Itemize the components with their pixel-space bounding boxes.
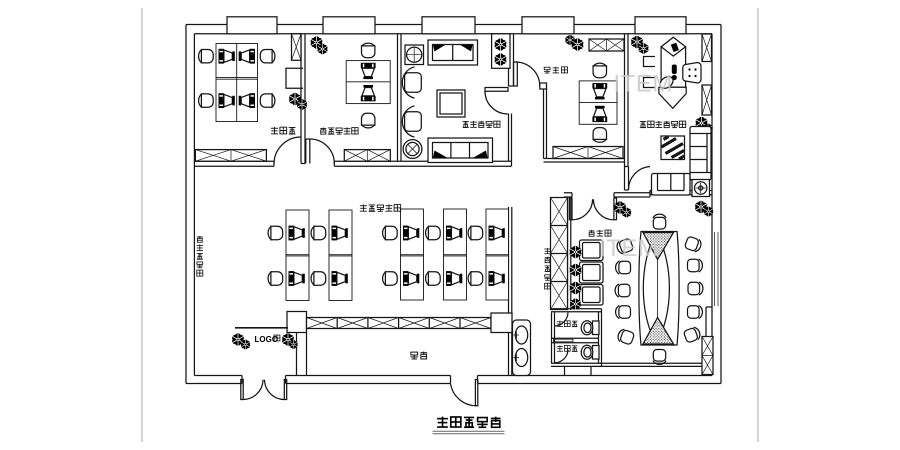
svg-text:LOGO: LOGO	[255, 335, 279, 344]
svg-text:ITEM: ITEM	[614, 71, 673, 98]
svg-text:ITEM: ITEM	[599, 235, 658, 262]
